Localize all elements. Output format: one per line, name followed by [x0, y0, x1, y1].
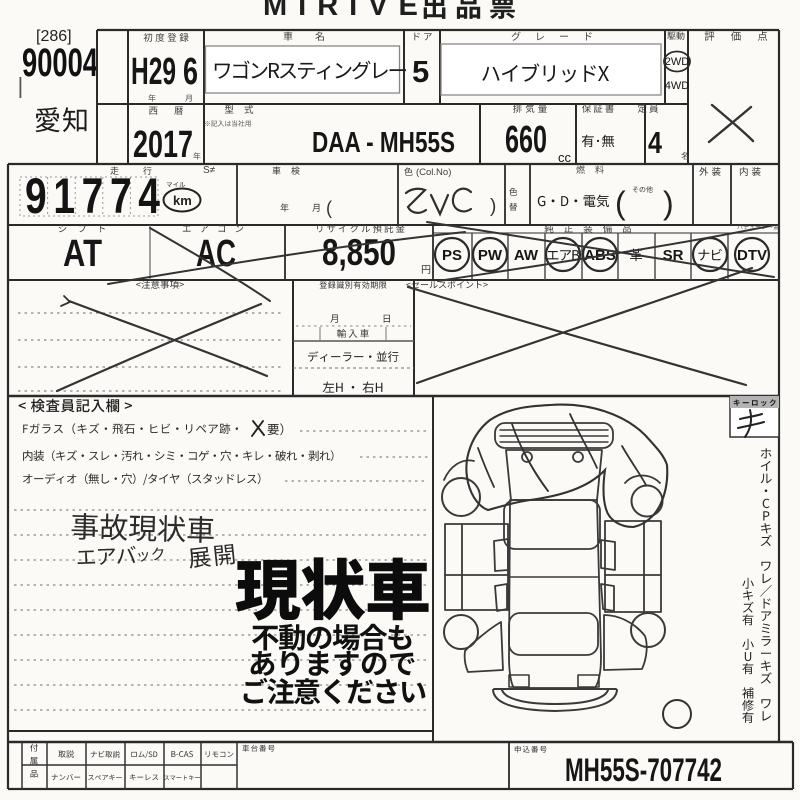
svg-text:PS: PS [442, 247, 462, 264]
svg-text:MIRIVE: MIRIVE [263, 0, 429, 22]
svg-text:AW: AW [514, 247, 539, 264]
svg-text:4WD: 4WD [665, 80, 690, 92]
svg-text:90004: 90004 [22, 41, 99, 85]
svg-text:91774: 91774 [25, 167, 167, 224]
svg-text:): ) [490, 196, 496, 217]
svg-text:S≠: S≠ [203, 165, 216, 176]
svg-text:H29: H29 [131, 51, 176, 93]
svg-text:DAA - MH55S: DAA - MH55S [312, 127, 455, 159]
svg-text:2WD: 2WD [665, 56, 690, 68]
svg-text:cc: cc [558, 150, 572, 165]
svg-text:km: km [173, 193, 192, 208]
svg-text:(: ( [326, 198, 332, 218]
svg-text:MH55S-707742: MH55S-707742 [565, 752, 722, 788]
svg-text:8,850: 8,850 [322, 232, 396, 273]
svg-text:AT: AT [63, 233, 102, 275]
svg-text:660: 660 [505, 119, 547, 161]
svg-text:4: 4 [648, 125, 663, 160]
svg-text:2017: 2017 [133, 124, 193, 166]
svg-text:6: 6 [183, 51, 198, 93]
svg-text:): ) [663, 185, 674, 221]
svg-text:(: ( [615, 185, 626, 221]
svg-text:PW: PW [478, 247, 503, 264]
svg-text:5: 5 [412, 54, 429, 89]
svg-text:DTV: DTV [737, 247, 767, 264]
svg-text:(Col.No): (Col.No) [416, 167, 451, 178]
